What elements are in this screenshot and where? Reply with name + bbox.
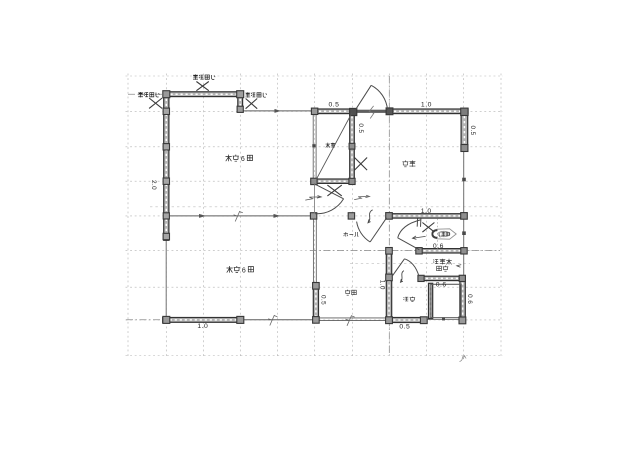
svg-text:0.6: 0.6 [433, 243, 444, 250]
svg-text:0.6: 0.6 [436, 282, 447, 289]
svg-text:6: 6 [241, 156, 245, 163]
svg-text:1.0: 1.0 [378, 280, 385, 290]
svg-text:1.0: 1.0 [421, 101, 432, 108]
svg-text:0.5: 0.5 [357, 123, 364, 133]
svg-text:1.0: 1.0 [421, 208, 432, 215]
svg-text:1.0: 1.0 [197, 323, 208, 330]
svg-text:6: 6 [242, 268, 246, 275]
svg-text:(: ( [439, 232, 441, 238]
svg-text:0.5: 0.5 [319, 295, 326, 305]
svg-text:0.5: 0.5 [399, 323, 410, 330]
svg-text:0.6: 0.6 [466, 294, 473, 304]
svg-text:0.5: 0.5 [469, 125, 476, 135]
svg-text:2.0: 2.0 [150, 180, 157, 190]
svg-text:0.5: 0.5 [329, 102, 340, 109]
